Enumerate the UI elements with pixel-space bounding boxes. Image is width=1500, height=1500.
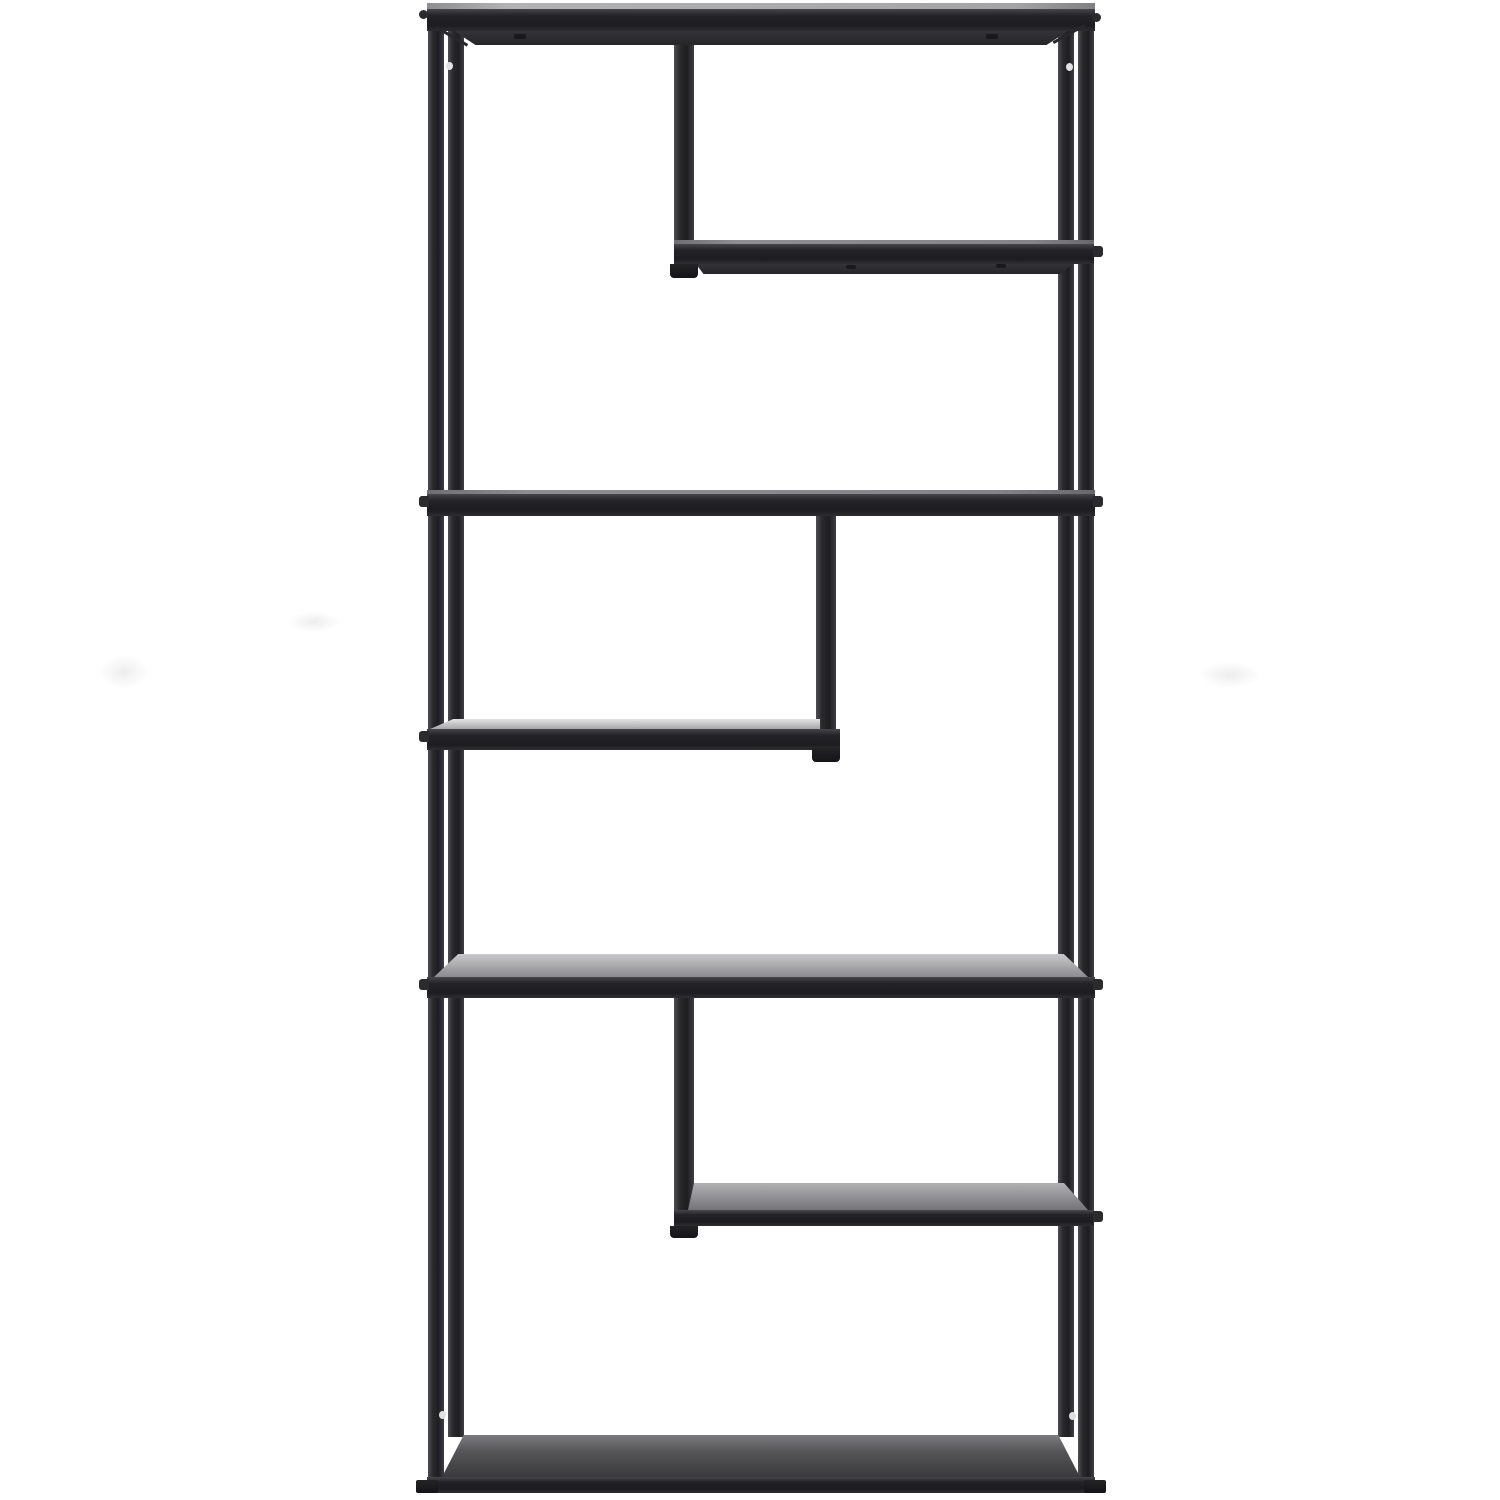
shelf-lower-right-surface: [688, 1183, 1088, 1210]
shelf-upper-right-screw-b: [996, 264, 1006, 268]
shelf-full-lower-bar: [427, 977, 1095, 998]
bottom-foot-right: [1084, 1480, 1106, 1493]
background-smudge-right: [1200, 662, 1260, 688]
shelf-mid-left-bar: [427, 729, 840, 750]
top-shelf-underside-screw-right: [986, 34, 998, 39]
middle-post-top-foot: [670, 264, 698, 278]
bottom-shelf-bar: [427, 1477, 1095, 1493]
screw-hole-top-right: [1066, 63, 1073, 71]
shelf-upper-right-bar: [674, 244, 1094, 264]
side-screw-left-l1: [419, 731, 429, 742]
middle-post-top: [674, 26, 694, 256]
shelf-full-lower-surface: [434, 954, 1088, 977]
middle-post-middle: [816, 502, 836, 752]
top-corner-screw-right: [1092, 13, 1101, 22]
shelf-upper-right-screw-a: [846, 265, 856, 269]
top-shelf-underside-screw-left: [514, 34, 526, 39]
top-corner-screw-left: [419, 10, 428, 19]
top-shelf-underside: [454, 31, 1068, 45]
top-shelf-bar: [427, 9, 1095, 31]
side-screw-right-r2: [1093, 1211, 1103, 1222]
side-screw-right-f1: [1093, 496, 1103, 507]
screw-hole-bottom-left: [439, 1411, 446, 1419]
background-smudge-left-upper: [288, 612, 340, 632]
side-screw-left-f2: [419, 979, 429, 990]
side-screw-left-f1: [419, 496, 429, 507]
middle-post-bottom: [674, 992, 694, 1228]
bookshelf-product-photo: [0, 0, 1500, 1500]
shelf-full-upper-bar: [427, 494, 1095, 516]
right-front-leg: [1078, 8, 1094, 1482]
shelf-lower-right-bar: [674, 1210, 1094, 1226]
bottom-shelf-surface: [442, 1435, 1080, 1477]
shelf-mid-left-surface: [430, 719, 820, 729]
bottom-foot-left: [416, 1480, 438, 1493]
side-screw-right-upper: [1093, 246, 1103, 257]
middle-post-bottom-foot: [670, 1226, 698, 1238]
shelf-upper-right-underside: [696, 264, 1072, 274]
screw-hole-bottom-right: [1069, 1412, 1076, 1420]
screw-hole-top-left: [446, 62, 453, 70]
middle-post-middle-foot: [812, 748, 840, 762]
background-smudge-left-lower: [100, 655, 148, 689]
side-screw-right-f2: [1093, 979, 1103, 990]
